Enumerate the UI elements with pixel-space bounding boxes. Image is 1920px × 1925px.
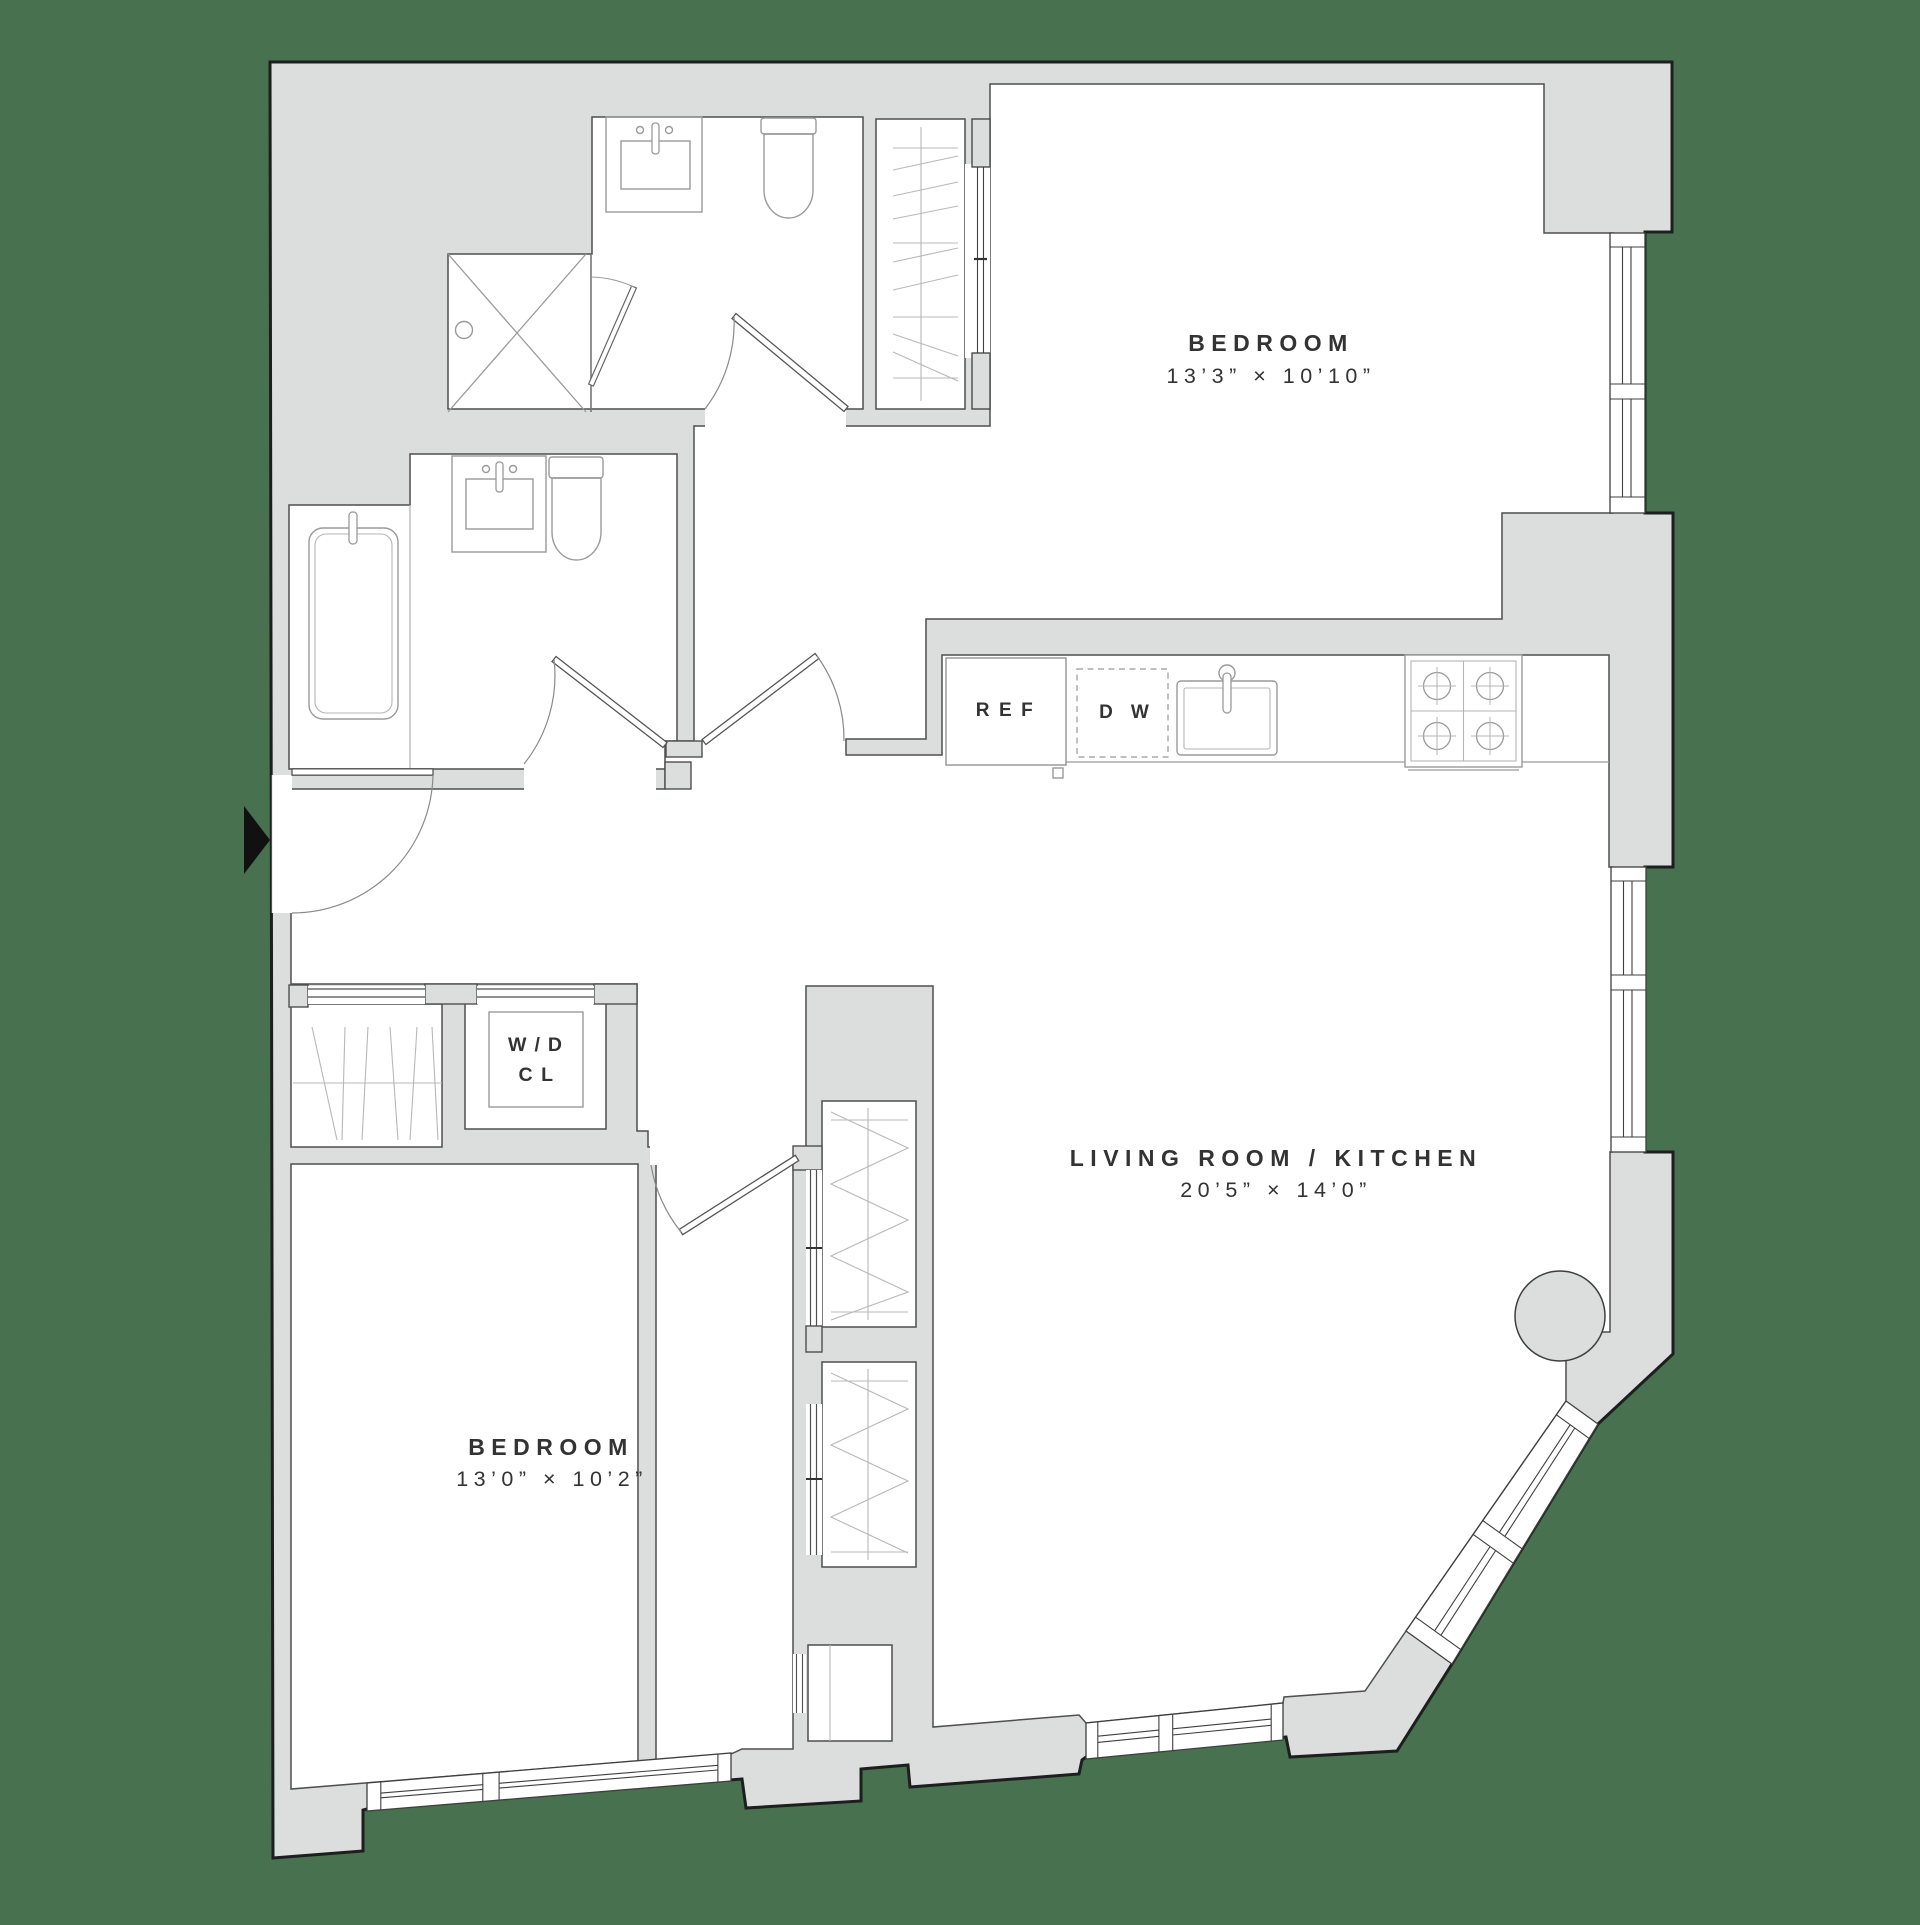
svg-text:13’0” × 10’2”: 13’0” × 10’2” (456, 1467, 648, 1491)
svg-text:W/D: W/D (508, 1034, 570, 1056)
svg-text:CL: CL (519, 1064, 562, 1086)
svg-text:DW: DW (1099, 702, 1167, 723)
svg-text:BEDROOM: BEDROOM (468, 1434, 634, 1460)
svg-text:20’5” × 14’0”: 20’5” × 14’0” (1180, 1178, 1372, 1202)
svg-text:13’3” × 10’10”: 13’3” × 10’10” (1166, 364, 1375, 388)
svg-text:BEDROOM: BEDROOM (1188, 330, 1354, 356)
svg-text:LIVING ROOM / KITCHEN: LIVING ROOM / KITCHEN (1070, 1145, 1483, 1171)
svg-text:REF: REF (976, 700, 1043, 721)
